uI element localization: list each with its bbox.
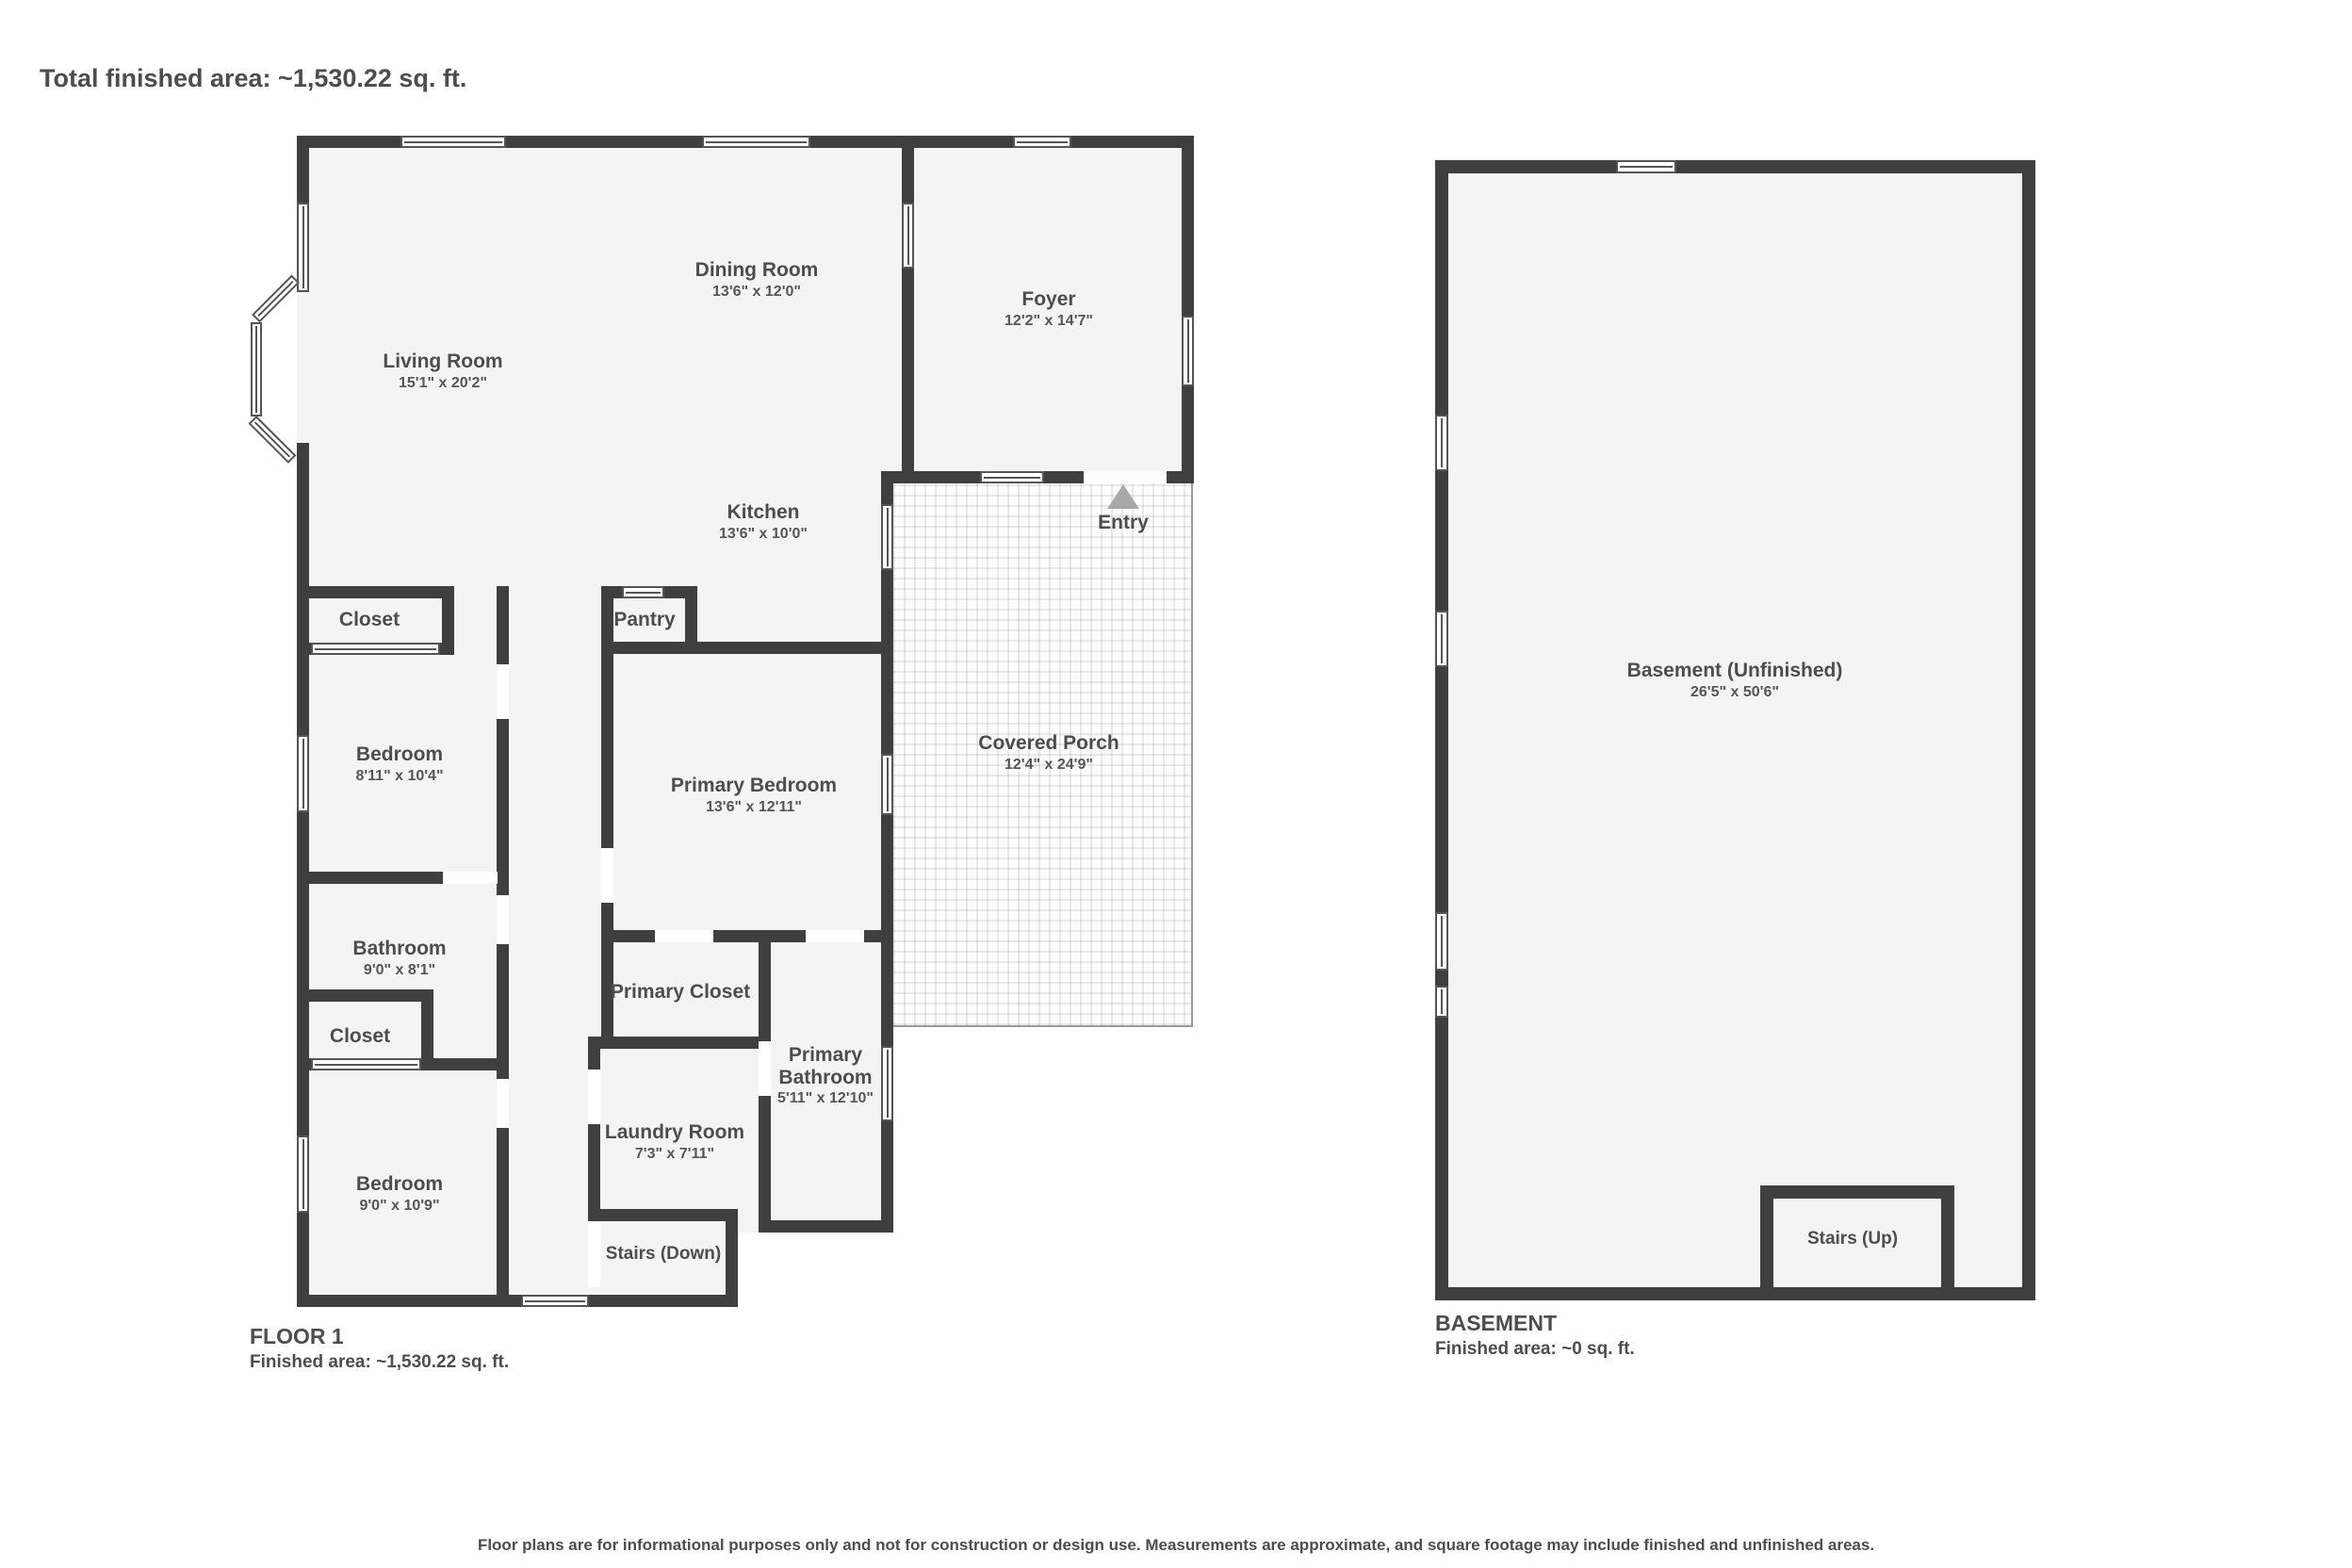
- floor-area: [1435, 160, 2035, 1300]
- window: [1435, 415, 1448, 471]
- wall: [601, 642, 893, 654]
- wall: [902, 136, 914, 483]
- room-label-primary-bedroom: Primary Bedroom 13'6" x 12'11": [671, 775, 837, 817]
- window: [1013, 136, 1071, 148]
- wall: [1435, 160, 2035, 173]
- floor-plan-page: Total finished area: ~1,530.22 sq. ft. L…: [0, 0, 2352, 1568]
- room-label-dining-room: Dining Room 13'6" x 12'0": [695, 259, 819, 302]
- window: [980, 471, 1044, 483]
- window: [297, 203, 309, 292]
- room-label-covered-porch: Covered Porch 12'4" x 24'9": [978, 732, 1119, 775]
- room-label-bedroom-2: Bedroom 9'0" x 10'9": [356, 1173, 443, 1216]
- window: [297, 735, 309, 812]
- room-label-living-room: Living Room 15'1" x 20'2": [383, 351, 502, 393]
- wall: [297, 1295, 738, 1307]
- wall: [297, 586, 454, 598]
- window: [251, 322, 262, 416]
- door-opening: [601, 848, 613, 903]
- door-opening: [588, 1070, 600, 1124]
- basement-name: BASEMENT: [1435, 1311, 1635, 1337]
- door-opening: [1084, 471, 1167, 483]
- room-label-kitchen: Kitchen 13'6" x 10'0": [719, 501, 808, 544]
- window: [881, 504, 893, 570]
- wall: [588, 1037, 771, 1049]
- window: [1182, 316, 1194, 386]
- room-label-laundry-room: Laundry Room 7'3" x 7'11": [605, 1121, 744, 1164]
- wall: [2022, 160, 2035, 1300]
- basement-caption: BASEMENT Finished area: ~0 sq. ft.: [1435, 1311, 1635, 1362]
- window: [1616, 160, 1676, 173]
- door-opening: [497, 1079, 509, 1128]
- room-label-entry: Entry: [1098, 512, 1149, 534]
- window: [702, 136, 810, 148]
- basement-area: Finished area: ~0 sq. ft.: [1435, 1337, 1635, 1363]
- door-opening: [806, 930, 864, 942]
- window: [881, 754, 893, 815]
- wall: [726, 1209, 738, 1307]
- wall: [588, 1037, 600, 1221]
- page-title: Total finished area: ~1,530.22 sq. ft.: [40, 64, 466, 93]
- window: [311, 643, 440, 655]
- room-label-stairs-down: Stairs (Down): [606, 1244, 721, 1264]
- wall: [297, 989, 433, 1002]
- entry-direction-arrow-icon: [1107, 484, 1139, 509]
- room-label-bedroom-1: Bedroom 8'11" x 10'4": [355, 743, 443, 786]
- room-label-foyer: Foyer 12'2" x 14'7": [1004, 288, 1093, 331]
- wall: [759, 1220, 893, 1233]
- wall: [1760, 1185, 1773, 1300]
- wall: [1182, 136, 1194, 483]
- window: [1435, 611, 1448, 667]
- window: [1435, 986, 1448, 1018]
- room-label-basement: Basement (Unfinished) 26'5" x 50'6": [1627, 660, 1843, 702]
- door-opening: [443, 872, 498, 884]
- floor1-caption: FLOOR 1 Finished area: ~1,530.22 sq. ft.: [250, 1324, 509, 1375]
- room-label-bathroom: Bathroom 9'0" x 8'1": [352, 938, 446, 980]
- door-opening: [497, 664, 509, 719]
- window: [311, 1058, 421, 1070]
- floor1-area: Finished area: ~1,530.22 sq. ft.: [250, 1350, 509, 1376]
- wall: [421, 1058, 509, 1070]
- window: [622, 586, 664, 598]
- door-opening: [588, 1221, 600, 1287]
- room-label-closet-top: Closet: [339, 609, 400, 631]
- window: [1435, 912, 1448, 971]
- room-label-closet-mid: Closet: [330, 1025, 390, 1048]
- door-opening: [497, 895, 509, 944]
- room-label-primary-bathroom: Primary Bathroom 5'11" x 12'10": [748, 1044, 904, 1109]
- disclaimer-text: Floor plans are for informational purpos…: [0, 1536, 2352, 1555]
- wall: [1941, 1185, 1954, 1300]
- wall: [588, 1209, 738, 1221]
- window: [521, 1295, 589, 1307]
- room-label-primary-closet: Primary Closet: [611, 981, 750, 1004]
- wall: [1435, 160, 1448, 1300]
- window: [249, 416, 297, 464]
- door-opening: [655, 930, 713, 942]
- window: [252, 275, 300, 323]
- room-label-stairs-up: Stairs (Up): [1807, 1229, 1898, 1249]
- window: [902, 203, 914, 269]
- window: [297, 1135, 309, 1213]
- wall: [1760, 1185, 1954, 1199]
- floor1-name: FLOOR 1: [250, 1324, 509, 1350]
- window: [400, 136, 506, 148]
- room-label-pantry: Pantry: [613, 609, 675, 631]
